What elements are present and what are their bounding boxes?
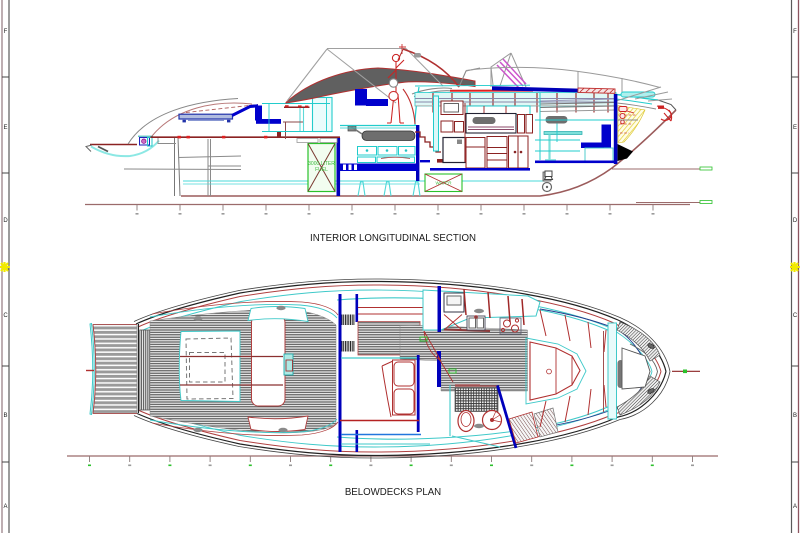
svg-text:BELOWDECKS PLAN: BELOWDECKS PLAN (345, 487, 441, 498)
svg-text:D: D (793, 218, 798, 224)
svg-text:B: B (793, 413, 797, 419)
svg-text:E: E (3, 125, 7, 131)
svg-text:C: C (793, 313, 798, 319)
svg-text:D: D (3, 218, 8, 224)
svg-text:FUEL: FUEL (315, 167, 328, 173)
svg-text:F: F (4, 29, 8, 35)
svg-text:F: F (793, 29, 797, 35)
svg-text:B: B (3, 413, 7, 419)
svg-text:C: C (3, 313, 8, 319)
svg-text:E: E (793, 125, 797, 131)
svg-text:A: A (793, 504, 797, 510)
svg-text:INTERIOR LONGITUDINAL SECTION: INTERIOR LONGITUDINAL SECTION (310, 233, 476, 244)
svg-text:WATER: WATER (435, 181, 452, 186)
svg-text:A: A (3, 504, 7, 510)
